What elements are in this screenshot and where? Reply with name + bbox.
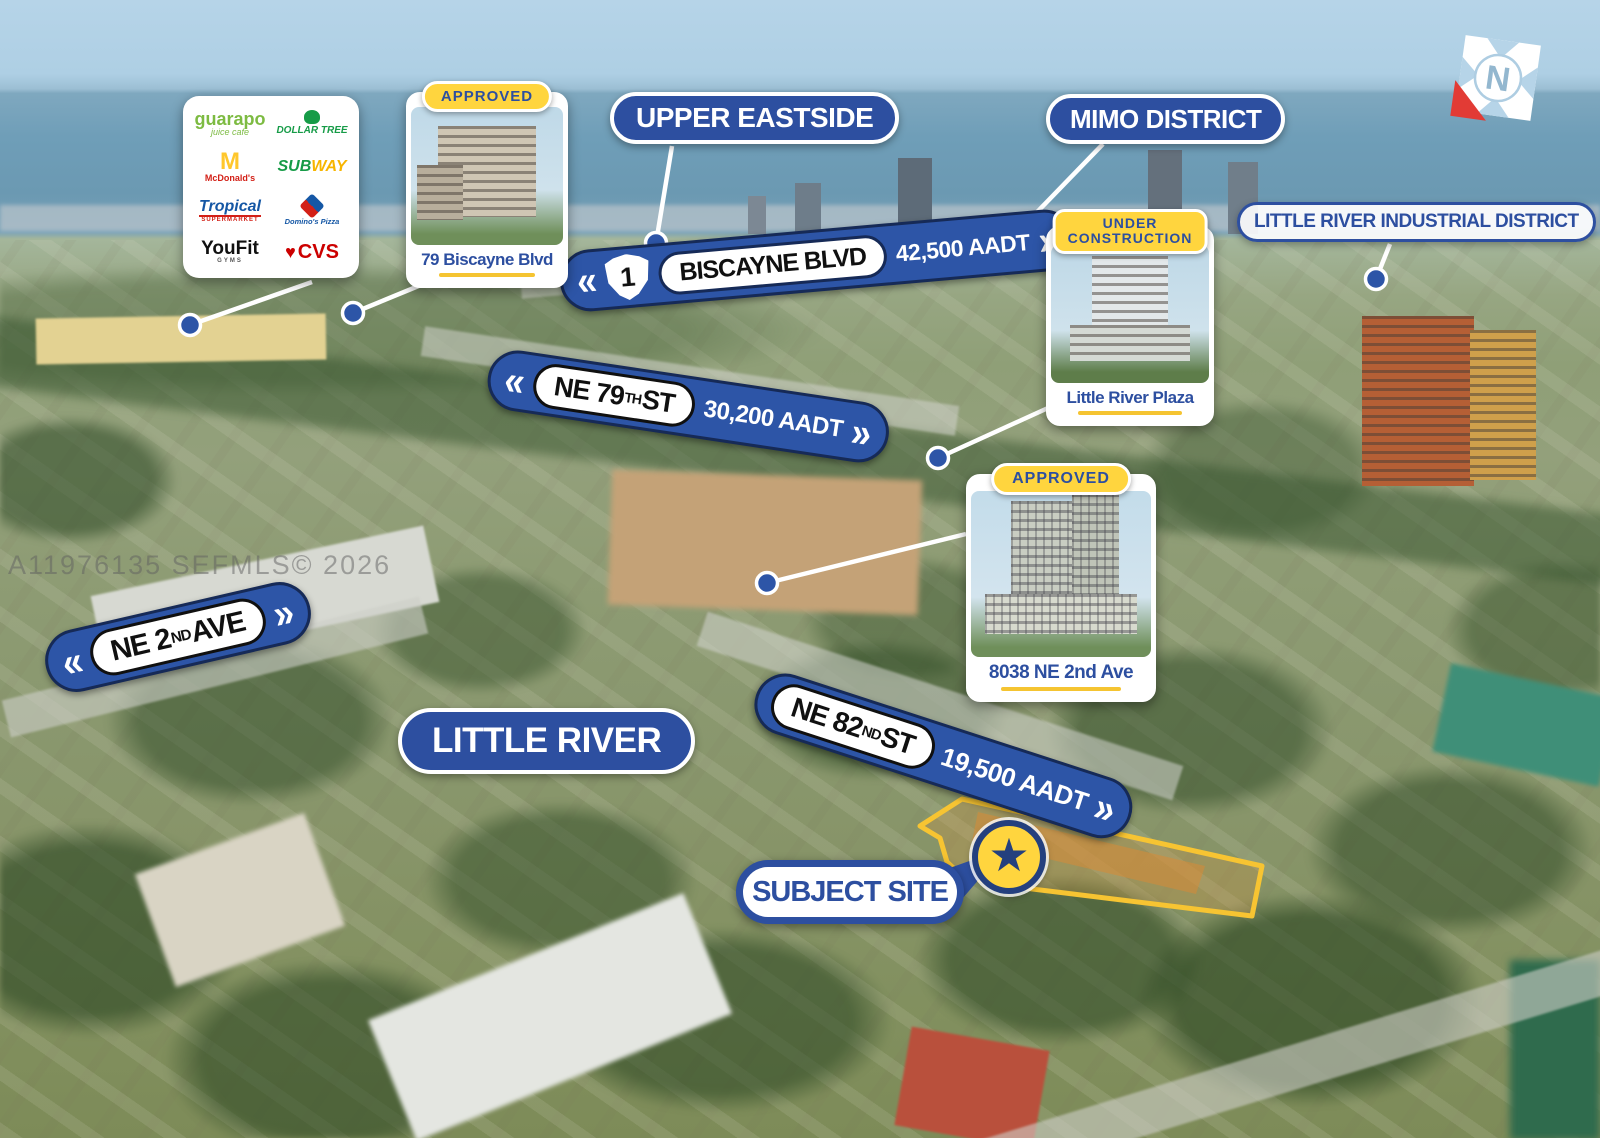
us1-route-shield: 1 xyxy=(604,252,652,302)
card-caption: Little River Plaza xyxy=(1051,388,1209,408)
aadt-label: 30,200 AADT xyxy=(702,395,845,443)
under-construction-badge: UNDER CONSTRUCTION xyxy=(1053,209,1208,254)
building-render xyxy=(411,107,563,245)
card-caption: 79 Biscayne Blvd xyxy=(411,250,563,270)
dollar-tree-logo: DOLLAR TREE xyxy=(276,110,347,136)
building-render xyxy=(1051,245,1209,383)
mcdonalds-logo: M McDonald's xyxy=(205,150,255,183)
rendered-podium xyxy=(1070,325,1190,361)
chevron-left-icon: « xyxy=(575,259,599,302)
road-name-pill: BISCAYNE BLVD xyxy=(657,233,889,296)
golden-arches-icon: M xyxy=(220,150,240,174)
subject-site-label: SUBJECT SITE xyxy=(736,860,964,924)
chevron-left-icon: « xyxy=(58,639,87,684)
building-render xyxy=(971,491,1151,657)
dominos-tile-icon xyxy=(299,193,324,218)
mls-watermark: A11976135 SEFMLS© 2026 xyxy=(8,550,391,581)
chevron-left-icon: « xyxy=(502,359,528,403)
nearby-retailers-panel: guarapo juice cafe DOLLAR TREE M McDonal… xyxy=(183,96,359,278)
approved-badge: APPROVED xyxy=(422,81,552,112)
district-label-mimo: MIMO DISTRICT xyxy=(1046,94,1285,144)
caption-underline xyxy=(1078,411,1182,415)
guarapo-logo: guarapo juice cafe xyxy=(194,110,265,137)
dominos-logo: Domino's Pizza xyxy=(285,197,340,226)
cvs-heart-icon: ♥ xyxy=(285,243,296,261)
subject-site-star-marker: ★ xyxy=(972,820,1046,894)
subway-logo: SUBWAY xyxy=(277,159,346,175)
rendered-wing xyxy=(417,165,463,220)
approved-card-79-biscayne: APPROVED 79 Biscayne Blvd xyxy=(406,92,568,288)
chevron-right-icon: » xyxy=(849,410,875,454)
star-icon: ★ xyxy=(988,832,1029,878)
district-label-little-river: LITTLE RIVER xyxy=(398,708,695,774)
dollar-tree-icon xyxy=(304,110,320,124)
rendered-podium xyxy=(985,594,1136,634)
approved-card-8038-ne-2nd: APPROVED 8038 NE 2nd Ave xyxy=(966,474,1156,702)
caption-underline xyxy=(439,273,535,277)
district-label-little-river-industrial: LITTLE RIVER INDUSTRIAL DISTRICT xyxy=(1237,202,1596,242)
caption-underline xyxy=(1001,687,1121,691)
cvs-logo: ♥ CVS xyxy=(285,242,339,262)
approved-badge: APPROVED xyxy=(991,463,1131,495)
compass-n: N xyxy=(1483,58,1513,99)
under-construction-card-little-river-plaza: UNDER CONSTRUCTION Little River Plaza xyxy=(1046,226,1214,426)
north-compass-icon: N xyxy=(1448,28,1548,128)
card-caption: 8038 NE 2nd Ave xyxy=(971,662,1151,684)
youfit-logo: YouFit GYMS xyxy=(201,239,259,264)
aerial-map: A11976135 SEFMLS© 2026 N guarapo juice c… xyxy=(0,0,1600,1138)
tropical-logo: Tropical SUPERMARKET xyxy=(199,199,261,223)
aadt-label: 42,500 AADT xyxy=(895,228,1031,267)
district-label-upper-eastside: UPPER EASTSIDE xyxy=(610,92,899,144)
chevron-right-icon: » xyxy=(269,590,298,635)
chevron-right-icon: » xyxy=(1089,786,1121,832)
